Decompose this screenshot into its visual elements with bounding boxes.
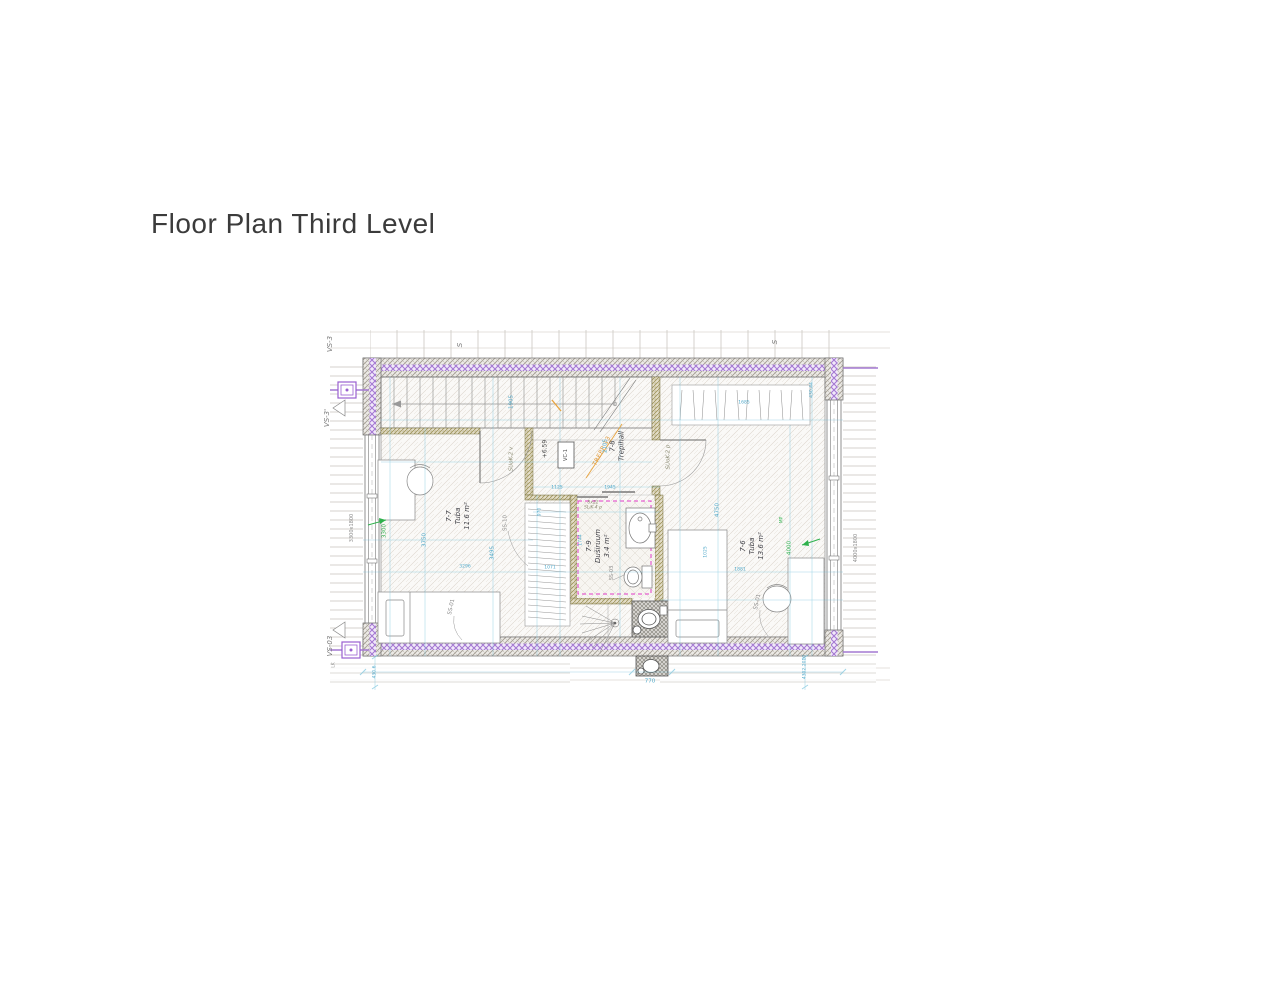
room-7-7-name: Tuba	[454, 502, 463, 529]
door-shower-code: SLiK-4 p	[584, 506, 602, 511]
wardrobe-code: SS-10	[503, 515, 510, 531]
level-marker: +6.59	[541, 440, 548, 458]
dim-stairs-depth: 1905	[509, 395, 516, 409]
dim-room76-d1: 1881	[734, 567, 745, 572]
dim-wardrobe-d2: 1071	[544, 565, 555, 570]
dim-corner-top-right: 430.44	[809, 382, 814, 398]
room-7-9-area: 3.4 m²	[602, 529, 611, 563]
dim-wardrobe-d1: 970	[537, 508, 542, 517]
grid-marker-s-right: S	[771, 340, 779, 344]
dim-window-left-span: 3300	[382, 524, 389, 538]
room-7-9-number: 7-9	[585, 529, 594, 563]
dim-hall-w2: 1945	[604, 485, 615, 490]
room-7-6-name: Tuba	[748, 532, 757, 559]
dim-room77-d2: 3495	[490, 546, 497, 560]
page-title: Floor Plan Third Level	[151, 208, 435, 240]
section-marker-vs03: VS-03	[326, 636, 334, 657]
vent-label: VC-1	[563, 449, 569, 461]
marker-lk: LK	[331, 662, 336, 667]
grid-marker-s-left: S	[456, 343, 464, 347]
dim-corner-bottom-right: 4302.2010	[802, 655, 807, 679]
room-7-8-number: 7-8	[608, 431, 617, 461]
dim-room77-width: 3296	[459, 564, 470, 569]
room-7-8-name: Trepihall	[617, 431, 626, 461]
dim-closet-width: 1685	[738, 400, 749, 405]
toilet-icon	[624, 566, 652, 588]
window-left	[365, 435, 379, 623]
vent-box-bottom-icon	[342, 642, 360, 658]
chair-7-7	[407, 467, 433, 495]
room-label-7-9: 7-9 Duširuum 3.4 m²	[585, 529, 611, 563]
section-marker-vs3-prime: VS-3'	[323, 409, 331, 427]
bed-7-7	[378, 592, 500, 643]
slide-page: Floor Plan Third Level	[0, 0, 1280, 988]
room-7-7-area: 11.6 m²	[462, 502, 471, 529]
room-7-6-number: 7-6	[739, 532, 748, 559]
dim-room76-d2: 1025	[703, 546, 708, 557]
chair-7-6	[763, 586, 791, 612]
floor-plan-drawing	[330, 318, 895, 703]
vent-box-top-icon	[338, 382, 356, 398]
dim-room77-d1: 3750	[422, 533, 429, 547]
section-marker-vs3: VS-3	[326, 336, 334, 352]
room-label-7-6: 7-6 Tuba 13.6 m²	[739, 532, 765, 559]
dim-mp: MP	[779, 517, 784, 524]
room-7-7-number: 7-7	[445, 502, 454, 529]
room-7-9-name: Duširuum	[594, 529, 603, 563]
window-right	[827, 400, 841, 630]
dim-corner-bottom-left: 430.6	[372, 666, 377, 679]
dim-hall-w1: 1125	[551, 485, 562, 490]
door-label-shower: 8x22 SLiK-4 p	[584, 501, 602, 512]
door-label-right: SUoK-2 p	[666, 445, 673, 470]
floor-plan: VS-3 VS-3' VS-03 S S LK 7-7 Tuba 11.6 m²…	[330, 318, 895, 703]
wc-code: SS-03	[609, 566, 615, 581]
dim-hall-height: 2105	[603, 439, 610, 453]
room-label-7-7: 7-7 Tuba 11.6 m²	[445, 502, 471, 529]
dim-room76-height: 4750	[715, 503, 722, 517]
sink-icon	[626, 508, 656, 548]
dim-window-right-span: 4000	[787, 541, 794, 555]
window-left-size: 3300x1800	[349, 514, 355, 542]
dim-shaft-width: 770	[645, 679, 656, 686]
dim-shower-left: 1744	[578, 534, 583, 545]
room-label-7-8: 7-8 Trepihall	[608, 431, 626, 461]
room-7-6-area: 13.6 m²	[756, 532, 765, 559]
window-right-size: 4000x1800	[853, 534, 859, 562]
door-label-left: SUoK-2 v	[509, 447, 516, 471]
